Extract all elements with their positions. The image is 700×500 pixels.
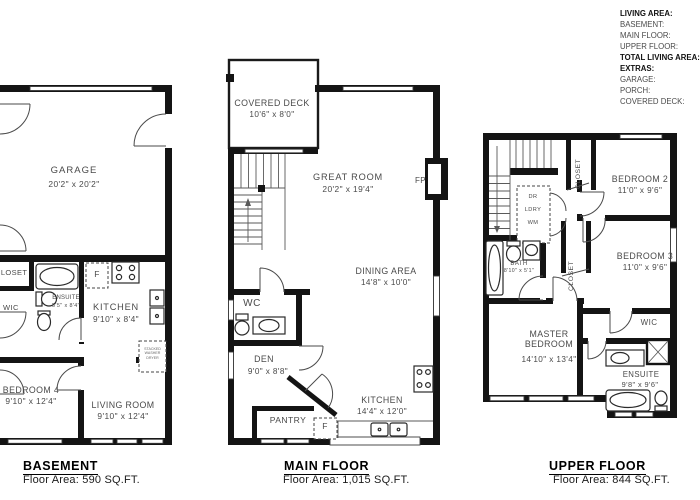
bath-toilet-icon <box>507 241 521 262</box>
room-dims-den: 9'0" x 8'8" <box>248 367 288 376</box>
room-dims-basement-kitchen: 9'10" x 8'4" <box>93 315 139 325</box>
ensuite-vanity-sink-icon <box>606 350 644 366</box>
main-stove-icon <box>414 366 433 392</box>
stairs-icon <box>234 154 285 250</box>
laundry-label: LDRY <box>525 207 541 213</box>
room-dims-dining-area: 14'8" x 10'0" <box>361 278 411 287</box>
bath-vanity-sink-icon <box>523 241 540 260</box>
room-dims-basement-ensuite: 5'5" x 8'4" <box>52 303 80 309</box>
dryer-label: DR <box>529 194 538 200</box>
room-dims-bedroom4: 9'10" x 12'4" <box>5 397 56 407</box>
double-sink-icon <box>371 423 407 436</box>
room-label-closet-bedroom2: CLOSET <box>575 143 583 189</box>
fridge-label-basement: F <box>94 270 100 280</box>
wc-toilet-icon <box>235 314 249 335</box>
room-label-den: DEN <box>254 354 274 364</box>
fridge-label-main: F <box>322 422 328 432</box>
room-dims-master-bedroom: 14'10" x 13'4" <box>521 355 576 364</box>
legend-garage: GARAGE: <box>620 74 700 85</box>
room-label-upper-wic: WIC <box>641 318 658 327</box>
room-label-pantry: PANTRY <box>270 416 306 426</box>
legend: LIVING AREA: BASEMENT: MAIN FLOOR: UPPER… <box>620 8 700 107</box>
room-dims-bath: 8'10" x 5'1" <box>504 269 534 275</box>
shower-icon <box>647 340 669 364</box>
basement-floor-area: Floor Area: 590 SQ.FT. <box>23 474 140 486</box>
washer-label: WM <box>528 220 539 226</box>
floor-plan-sheet: LIVING AREA: BASEMENT: MAIN FLOOR: UPPER… <box>0 0 700 500</box>
room-dims-living-room: 9'10" x 12'4" <box>97 412 148 422</box>
stove-icon <box>112 262 139 283</box>
room-label-dining-area: DINING AREA <box>355 266 416 276</box>
fireplace-icon <box>425 158 448 200</box>
basement-title: BASEMENT <box>23 459 98 475</box>
ensuite-toilet-icon <box>655 391 667 411</box>
laundry-closet-box <box>517 186 566 243</box>
room-label-basement-wic: WIC <box>3 304 19 313</box>
room-label-covered-deck: COVERED DECK <box>234 98 309 108</box>
room-dims-great-room: 20'2" x 19'4" <box>322 185 373 195</box>
room-dims-main-kitchen: 14'4" x 12'0" <box>357 407 407 416</box>
room-label-bedroom4: BEDROOM 4 <box>3 385 59 395</box>
room-label-upper-ensuite: ENSUITE <box>623 371 660 380</box>
bathtub-icon <box>36 264 78 289</box>
kitchen-sink-icon <box>150 290 164 324</box>
washer-dryer-label: STACKED WASHER DRYER <box>142 347 164 360</box>
room-label-master-bedroom: MASTER BEDROOM <box>513 329 585 349</box>
room-dims-upper-ensuite: 9'8" x 9'6" <box>622 381 659 390</box>
legend-basement: BASEMENT: <box>620 19 700 30</box>
room-label-main-kitchen: KITCHEN <box>361 395 402 405</box>
bath-tub-icon <box>486 241 503 295</box>
room-dims-covered-deck: 10'6" x 8'0" <box>249 110 294 119</box>
legend-total: TOTAL LIVING AREA: <box>620 52 700 63</box>
pedestal-sink-icon <box>38 311 51 331</box>
room-label-living-room: LIVING ROOM <box>91 400 154 410</box>
ensuite-tub-icon <box>606 390 650 411</box>
room-label-wc: WC <box>243 298 261 310</box>
room-label-garage: GARAGE <box>51 166 98 177</box>
floor-plan-drawing <box>0 0 700 500</box>
upper-floor-area: Floor Area: 844 SQ.FT. <box>553 474 670 486</box>
upper-floor-title: UPPER FLOOR <box>549 459 646 475</box>
room-label-bedroom3: BEDROOM 3 <box>617 251 673 261</box>
main-floor-title: MAIN FLOOR <box>284 459 369 475</box>
room-dims-bedroom3: 11'0" x 9'6" <box>623 263 668 272</box>
legend-extras: EXTRAS: <box>620 63 700 74</box>
room-label-basement-ensuite: ENSUITE <box>52 295 79 302</box>
main-walls <box>228 85 440 445</box>
fireplace-label: FP <box>415 176 426 185</box>
legend-upper-floor: UPPER FLOOR: <box>620 41 700 52</box>
legend-porch: PORCH: <box>620 85 700 96</box>
room-label-closet-bedroom3: CLOSET <box>568 245 576 291</box>
room-label-great-room: GREAT ROOM <box>313 172 383 183</box>
legend-living-area: LIVING AREA: <box>620 8 700 19</box>
room-label-bedroom2: BEDROOM 2 <box>612 174 668 184</box>
room-label-bath: BATH <box>510 261 527 268</box>
room-label-basement-kitchen: KITCHEN <box>93 302 139 313</box>
room-dims-bedroom2: 11'0" x 9'6" <box>618 186 663 195</box>
legend-main-floor: MAIN FLOOR: <box>620 30 700 41</box>
main-floor-area: Floor Area: 1,015 SQ.FT. <box>283 474 409 486</box>
legend-covered-deck: COVERED DECK: <box>620 96 700 107</box>
room-dims-garage: 20'2" x 20'2" <box>48 180 99 190</box>
room-label-basement-closet: CLOSET <box>0 269 27 278</box>
wc-vanity-sink-icon <box>253 317 285 334</box>
